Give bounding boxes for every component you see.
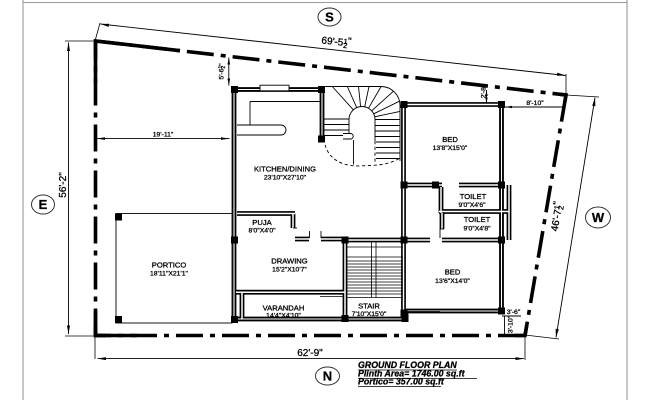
svg-text:N: N: [323, 369, 332, 384]
svg-text:15'2"X10'7": 15'2"X10'7": [272, 267, 307, 274]
svg-text:TOILET: TOILET: [460, 192, 487, 201]
svg-text:62'-9": 62'-9": [297, 348, 323, 359]
svg-text:13'8"X15'0": 13'8"X15'0": [433, 145, 468, 152]
svg-text:13'6"X14'0": 13'6"X14'0": [435, 278, 470, 285]
svg-text:PORTICO: PORTICO: [152, 261, 187, 270]
svg-text:19'-11": 19'-11": [153, 132, 174, 139]
svg-text:8'-10": 8'-10": [526, 100, 544, 107]
svg-text:BED: BED: [442, 135, 458, 144]
svg-text:56'-2": 56'-2": [58, 172, 69, 198]
svg-text:18'11"X21'1": 18'11"X21'1": [150, 271, 188, 278]
svg-text:VARANDAH: VARANDAH: [263, 304, 305, 313]
svg-text:3'-6": 3'-6": [507, 309, 521, 316]
svg-text:STAIR: STAIR: [358, 302, 380, 311]
svg-text:S: S: [325, 10, 334, 25]
svg-text:9'0"X4'8": 9'0"X4'8": [463, 226, 491, 233]
svg-text:3'-10": 3'-10": [507, 315, 514, 333]
svg-text:KITCHEN/DINING: KITCHEN/DINING: [254, 165, 316, 174]
svg-text:7'10"X15'0": 7'10"X15'0": [352, 311, 387, 318]
svg-text:DRAWING: DRAWING: [271, 257, 308, 266]
svg-text:14'4"X4'10": 14'4"X4'10": [266, 312, 301, 319]
svg-text:8'0"X4'0": 8'0"X4'0": [248, 228, 276, 235]
svg-text:E: E: [39, 197, 48, 212]
svg-text:9'0"X4'6": 9'0"X4'6": [458, 202, 486, 209]
svg-text:23'10"X27'10": 23'10"X27'10": [264, 175, 307, 182]
svg-text:TOILET: TOILET: [464, 215, 491, 224]
svg-text:PUJA: PUJA: [252, 218, 272, 227]
svg-text:W: W: [592, 210, 605, 225]
svg-text:BED: BED: [445, 268, 461, 277]
svg-text:2'-8": 2'-8": [481, 84, 488, 98]
